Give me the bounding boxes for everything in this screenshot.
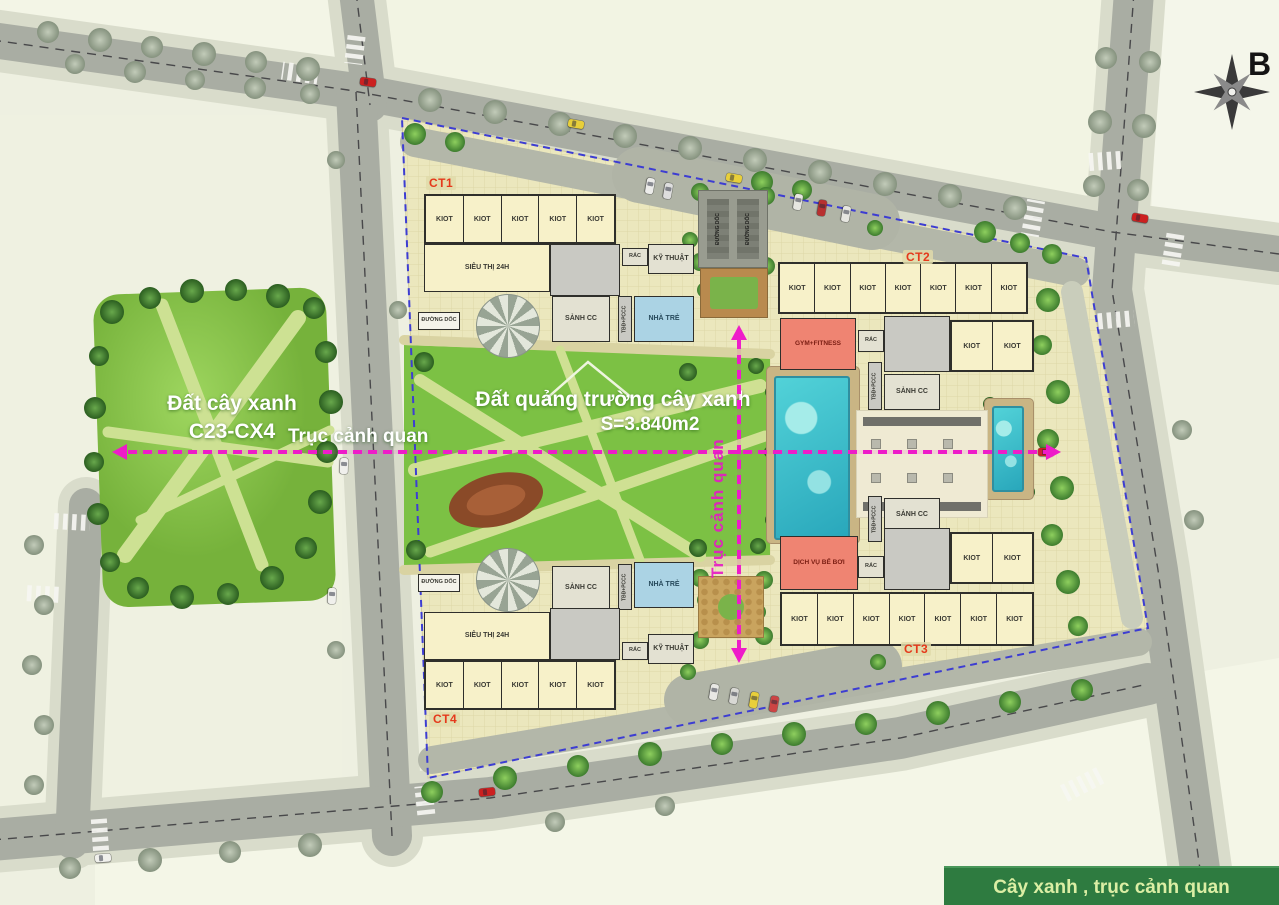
ct3-kiosk-row: KIOT KIOT KIOT KIOT KIOT KIOT KIOT bbox=[780, 592, 1034, 646]
kiot-room: KIOT bbox=[956, 264, 991, 312]
site-plan: ĐƯỜNG DỐC ĐƯỜNG DỐC CT1 KIOT KIOT KIOT K… bbox=[0, 0, 1279, 905]
plaza-label-line1: Đất quảng trường cây xanh bbox=[448, 388, 778, 412]
kiot-room: KIOT bbox=[539, 196, 577, 242]
car-icon bbox=[479, 787, 496, 797]
kiot-room: KIOT bbox=[426, 196, 464, 242]
small-pool bbox=[992, 406, 1024, 492]
ct1-ramp: ĐƯỜNG DỐC bbox=[418, 312, 460, 330]
compass-north-label: B bbox=[1248, 46, 1271, 83]
ct1-supermarket: SIÊU THỊ 24H bbox=[424, 244, 550, 292]
kiot-room: KIOT bbox=[502, 662, 540, 708]
kiot-room: KIOT bbox=[502, 196, 540, 242]
ramp-label: ĐƯỜNG DỐC bbox=[715, 213, 721, 245]
ct2-trash: RÁC bbox=[858, 330, 884, 352]
south-hex-garden bbox=[698, 576, 764, 638]
kiot-room: KIOT bbox=[952, 534, 993, 582]
kiot-room: KIOT bbox=[426, 662, 464, 708]
landscape-axis-horizontal bbox=[128, 450, 1046, 454]
ct4-supermarket: SIÊU THỊ 24H bbox=[424, 612, 550, 660]
ct1-lobby: SẢNH CC bbox=[552, 296, 610, 342]
kiot-room: KIOT bbox=[577, 196, 614, 242]
kiot-room: KIOT bbox=[815, 264, 850, 312]
kiot-room: KIOT bbox=[854, 594, 890, 644]
ct4-ramp: ĐƯỜNG DỐC bbox=[418, 574, 460, 592]
ramp-label: ĐƯỜNG DỐC bbox=[745, 213, 751, 245]
ct3-core bbox=[884, 528, 950, 590]
parking-ramp-area: ĐƯỜNG DỐC ĐƯỜNG DỐC bbox=[698, 190, 768, 268]
ct1-electrical: TBĐ+PCCC bbox=[618, 296, 632, 342]
ct4-kiosk-row: KIOT KIOT KIOT KIOT KIOT bbox=[424, 660, 616, 710]
ct1-core bbox=[550, 244, 620, 296]
ct1-kindergarten: NHÀ TRẺ bbox=[634, 296, 694, 342]
ct4-electrical: TBĐ+PCCC bbox=[618, 564, 632, 610]
vertical-axis-label: Trục cảnh quan bbox=[708, 408, 728, 578]
kiot-room: KIOT bbox=[921, 264, 956, 312]
ct1-courtyard-mosaic bbox=[476, 294, 540, 358]
legend-label: Cây xanh , trục cảnh quan bbox=[993, 877, 1230, 899]
ct2-gym: GYM+FITNESS bbox=[780, 318, 856, 370]
ct4-core bbox=[550, 608, 620, 660]
ct4-technical: KỸ THUẬT bbox=[648, 634, 694, 664]
ct1-code: CT1 bbox=[426, 176, 456, 190]
ct2-lobby: SẢNH CC bbox=[884, 374, 940, 410]
axis-arrow-west bbox=[112, 444, 127, 460]
car-icon bbox=[340, 458, 349, 474]
kiot-room: KIOT bbox=[464, 662, 502, 708]
park-label-line1: Đất cây xanh bbox=[132, 392, 332, 416]
ct4-trash: RÁC bbox=[622, 642, 648, 660]
legend-bar: Cây xanh , trục cảnh quan bbox=[944, 866, 1279, 905]
ct4-courtyard-mosaic bbox=[476, 548, 540, 612]
ct3-electrical: TBĐ+PCCC bbox=[868, 496, 882, 542]
axis-arrow-north bbox=[731, 325, 747, 340]
car-icon bbox=[95, 853, 112, 862]
ct2-kiosk-row: KIOT KIOT KIOT KIOT KIOT KIOT KIOT bbox=[778, 262, 1028, 314]
kiot-room: KIOT bbox=[992, 264, 1026, 312]
ct4-lobby: SẢNH CC bbox=[552, 566, 610, 610]
ct4-code: CT4 bbox=[430, 712, 460, 726]
axis-arrow-south bbox=[731, 648, 747, 663]
ct2-core bbox=[884, 316, 950, 372]
ramp-lane: ĐƯỜNG DỐC bbox=[737, 199, 759, 259]
kiot-room: KIOT bbox=[780, 264, 815, 312]
kiot-room: KIOT bbox=[539, 662, 577, 708]
ct3-lobby: SẢNH CC bbox=[884, 498, 940, 532]
axis-arrow-east bbox=[1046, 444, 1061, 460]
ramp-lane: ĐƯỜNG DỐC bbox=[707, 199, 729, 259]
kiot-room: KIOT bbox=[890, 594, 926, 644]
kiot-room: KIOT bbox=[851, 264, 886, 312]
ct3-pool-service: DỊCH VỤ BỂ BƠI bbox=[780, 536, 858, 590]
kiot-room: KIOT bbox=[782, 594, 818, 644]
car-icon bbox=[328, 588, 337, 604]
kiot-room: KIOT bbox=[925, 594, 961, 644]
kiot-room: KIOT bbox=[952, 322, 993, 370]
kiot-room: KIOT bbox=[818, 594, 854, 644]
ct3-trash: RÁC bbox=[858, 556, 884, 578]
ct2-code: CT2 bbox=[903, 250, 933, 264]
ct2-electrical: TBĐ+PCCC bbox=[868, 362, 882, 410]
ct3-code: CT3 bbox=[901, 642, 931, 656]
ct1-kiosk-row: KIOT KIOT KIOT KIOT KIOT bbox=[424, 194, 616, 244]
ct1-trash: RÁC bbox=[622, 248, 648, 266]
ct1-technical: KỸ THUẬT bbox=[648, 244, 694, 274]
kiot-room: KIOT bbox=[577, 662, 614, 708]
horizontal-axis-label: Trục cảnh quan bbox=[288, 426, 428, 448]
kiot-room: KIOT bbox=[993, 322, 1033, 370]
ct4-kindergarten: NHÀ TRẺ bbox=[634, 562, 694, 608]
kiot-room: KIOT bbox=[464, 196, 502, 242]
ct3-upper-kiosks: KIOT KIOT bbox=[950, 532, 1034, 584]
kiot-room: KIOT bbox=[993, 534, 1033, 582]
kiot-room: KIOT bbox=[886, 264, 921, 312]
main-pool bbox=[774, 376, 850, 540]
kiot-room: KIOT bbox=[961, 594, 997, 644]
ct2-lower-kiosks: KIOT KIOT bbox=[950, 320, 1034, 372]
north-garden-court bbox=[700, 268, 768, 318]
landscape-axis-vertical bbox=[737, 340, 741, 648]
kiot-room: KIOT bbox=[997, 594, 1032, 644]
